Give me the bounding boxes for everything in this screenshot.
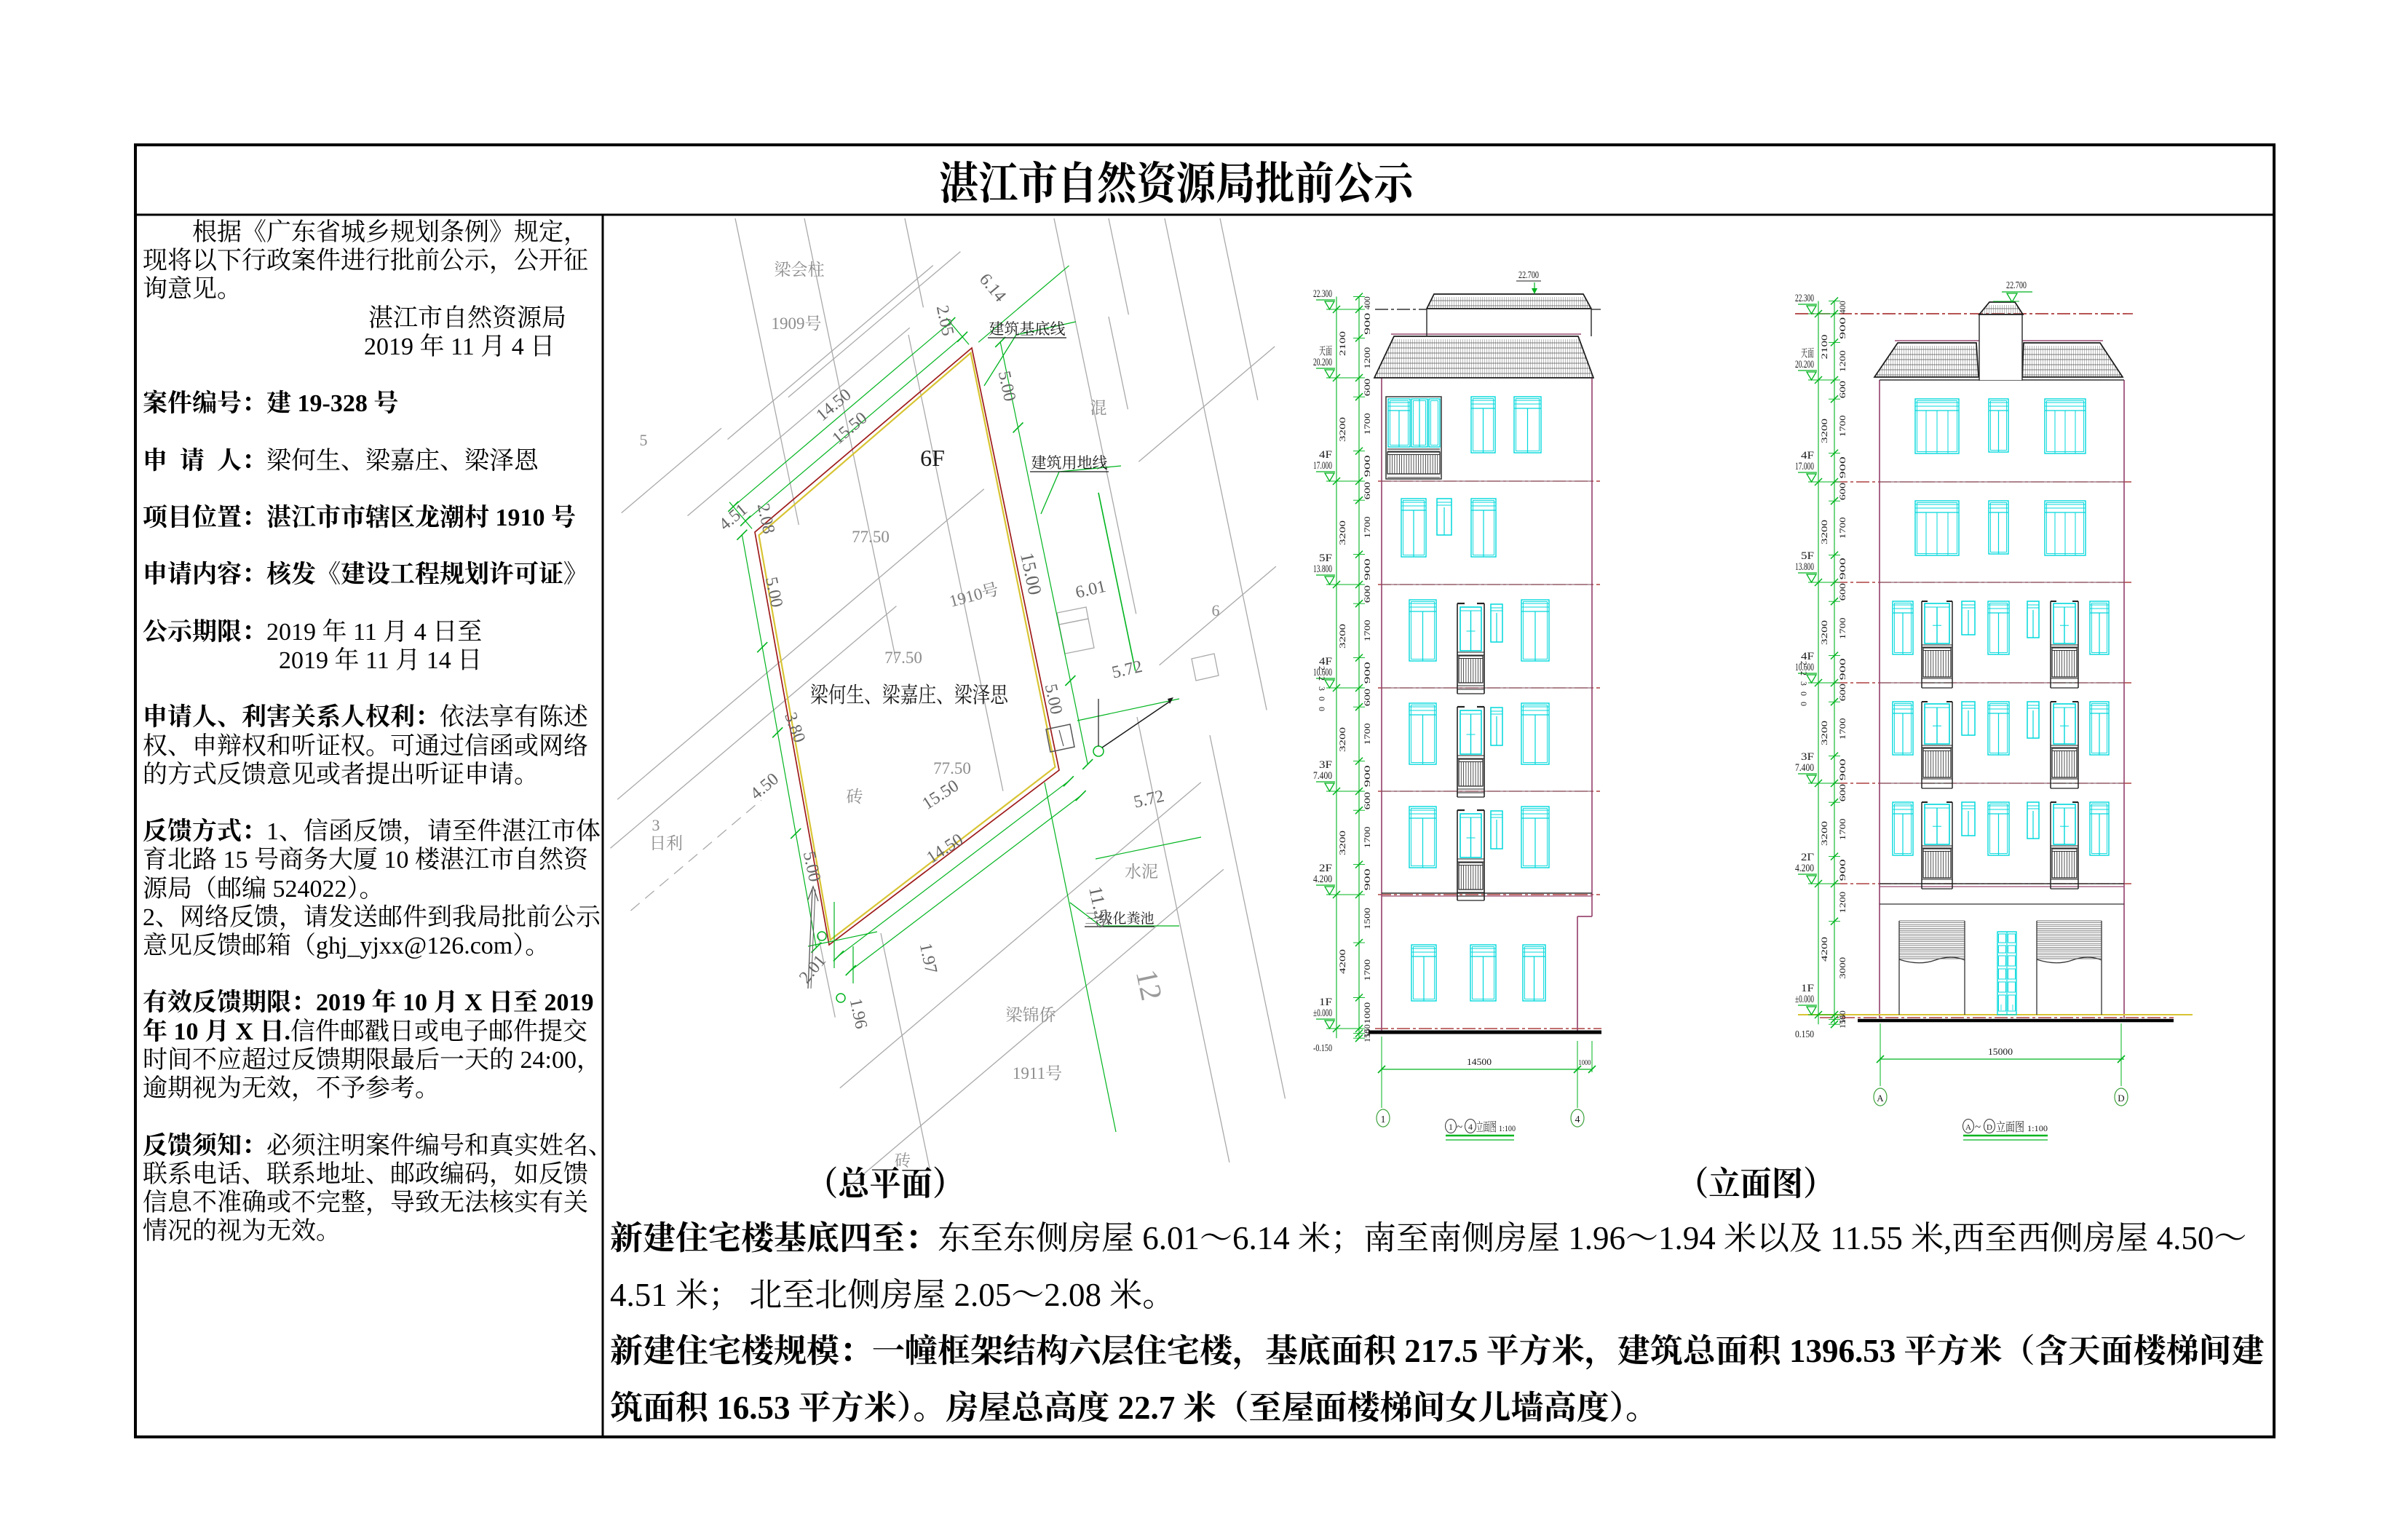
svg-text:梁锦侨: 梁锦侨	[1006, 1006, 1056, 1024]
svg-text:400: 400	[1362, 296, 1372, 309]
svg-text:梁何生、梁嘉庄、梁泽思: 梁何生、梁嘉庄、梁泽思	[810, 684, 1009, 708]
svg-text:3200: 3200	[1337, 727, 1347, 752]
svg-text:400: 400	[1837, 301, 1847, 314]
svg-text:20.200: 20.200	[1313, 357, 1332, 368]
svg-text:5F: 5F	[1801, 550, 1814, 562]
svg-text:900: 900	[1362, 765, 1372, 787]
svg-text:4F: 4F	[1801, 450, 1814, 462]
svg-text:D: D	[1987, 1123, 1992, 1132]
svg-text:150: 150	[1362, 1029, 1372, 1042]
svg-text:5.00: 5.00	[761, 575, 786, 609]
svg-text:3200: 3200	[1819, 821, 1829, 846]
svg-text:3.80: 3.80	[780, 710, 809, 745]
svg-text:1700: 1700	[1362, 413, 1372, 435]
svg-text:1000: 1000	[1579, 1059, 1591, 1067]
svg-text:4200: 4200	[1337, 949, 1347, 974]
svg-text:3200: 3200	[1337, 831, 1347, 855]
svg-text:3200: 3200	[1337, 520, 1347, 545]
svg-text:600: 600	[1362, 792, 1372, 809]
svg-text:±0.000: ±0.000	[1795, 994, 1814, 1005]
svg-text:D: D	[2118, 1093, 2124, 1104]
svg-text:0.150: 0.150	[1795, 1029, 1814, 1040]
svg-text:17.000: 17.000	[1313, 460, 1332, 472]
svg-text:4: 4	[1575, 1114, 1580, 1125]
svg-text:6.01: 6.01	[1074, 577, 1108, 603]
svg-text:1909号: 1909号	[772, 314, 822, 333]
svg-text:900: 900	[1837, 758, 1847, 780]
svg-text:4200: 4200	[1819, 937, 1829, 962]
svg-text:12: 12	[1129, 967, 1168, 1004]
svg-text:梁会柱: 梁会柱	[775, 261, 825, 279]
svg-text:1:100: 1:100	[1499, 1123, 1516, 1133]
svg-text:6: 6	[1212, 601, 1220, 619]
svg-text:22.300: 22.300	[1795, 293, 1814, 304]
svg-text:900: 900	[1362, 558, 1372, 580]
svg-text:2Γ: 2Γ	[1801, 852, 1814, 863]
svg-text:600: 600	[1837, 583, 1847, 601]
svg-text:4F: 4F	[1319, 449, 1332, 461]
svg-text:5.72: 5.72	[1110, 657, 1144, 683]
svg-text:900: 900	[1837, 658, 1847, 680]
svg-text:立面图: 立面图	[1996, 1120, 2024, 1134]
svg-text:900: 900	[1362, 313, 1372, 335]
svg-text:3200: 3200	[1819, 721, 1829, 745]
svg-text:4: 4	[1468, 1122, 1473, 1132]
svg-text:1F: 1F	[1801, 983, 1814, 994]
svg-text:1F: 1F	[1319, 997, 1332, 1008]
svg-text:天面: 天面	[1319, 345, 1332, 357]
svg-text:日利: 日利	[649, 834, 683, 852]
svg-text:22.700: 22.700	[1518, 270, 1539, 281]
svg-text:14.50: 14.50	[923, 831, 966, 868]
svg-text:15.00: 15.00	[1016, 551, 1046, 597]
svg-text:3200: 3200	[1819, 620, 1829, 645]
svg-text:7.400: 7.400	[1313, 770, 1332, 782]
svg-text:150: 150	[1837, 1015, 1847, 1029]
svg-text:77.50: 77.50	[884, 649, 922, 667]
svg-text:1911号: 1911号	[1013, 1064, 1062, 1082]
svg-text:600: 600	[1837, 381, 1847, 398]
svg-text:1.96: 1.96	[846, 997, 871, 1030]
svg-text:1700: 1700	[1362, 826, 1372, 848]
svg-text:2.05: 2.05	[932, 304, 957, 337]
svg-text:3200: 3200	[1819, 419, 1829, 443]
svg-text:1700: 1700	[1837, 617, 1847, 639]
svg-text:900: 900	[1837, 456, 1847, 478]
svg-text:A: A	[1965, 1123, 1971, 1132]
svg-text:2.01: 2.01	[796, 951, 830, 987]
svg-text:77.50: 77.50	[933, 759, 971, 777]
svg-text:22.300: 22.300	[1313, 288, 1332, 300]
svg-text:1:100: 1:100	[2027, 1123, 2048, 1133]
svg-text:1: 1	[1449, 1122, 1453, 1132]
svg-text:天面: 天面	[1801, 347, 1814, 360]
svg-text:600: 600	[1837, 684, 1847, 701]
svg-text:3: 3	[652, 816, 660, 834]
svg-text:600: 600	[1362, 482, 1372, 499]
svg-text:~: ~	[1457, 1122, 1462, 1133]
svg-text:1200: 1200	[1837, 350, 1847, 372]
svg-text:1: 1	[1381, 1114, 1386, 1125]
svg-text:1700: 1700	[1837, 818, 1847, 840]
svg-text:600: 600	[1362, 379, 1372, 396]
svg-text:5F: 5F	[1319, 552, 1332, 564]
svg-text:1700: 1700	[1362, 959, 1372, 981]
svg-text:6F: 6F	[920, 445, 945, 471]
svg-text:1700: 1700	[1837, 718, 1847, 740]
svg-text:15.50: 15.50	[919, 777, 962, 814]
svg-text:900: 900	[1837, 558, 1847, 579]
svg-text:7.400: 7.400	[1795, 762, 1814, 774]
svg-text:600: 600	[1362, 585, 1372, 603]
svg-text:1700: 1700	[1362, 723, 1372, 745]
svg-text:水泥: 水泥	[1125, 863, 1158, 881]
svg-text:1000: 1000	[1362, 1002, 1372, 1024]
svg-text:±0.000: ±0.000	[1313, 1007, 1332, 1019]
svg-text:4.50: 4.50	[747, 769, 783, 804]
svg-text:1200: 1200	[1837, 892, 1847, 914]
svg-text:13.800: 13.800	[1795, 561, 1814, 573]
svg-text:5.72: 5.72	[1132, 787, 1166, 812]
svg-text:2100: 2100	[1819, 335, 1829, 360]
svg-text:1200: 1200	[1362, 347, 1372, 369]
svg-text:13.800: 13.800	[1313, 563, 1332, 575]
svg-text:2100: 2100	[1337, 331, 1347, 356]
svg-text:1.97: 1.97	[916, 941, 940, 975]
svg-text:3200: 3200	[1819, 520, 1829, 544]
svg-text:4.200: 4.200	[1795, 863, 1814, 874]
svg-text:600: 600	[1362, 689, 1372, 706]
svg-text:4.200: 4.200	[1313, 874, 1332, 885]
svg-text:建筑用地线: 建筑用地线	[1031, 454, 1108, 472]
svg-text:17.000: 17.000	[1795, 461, 1814, 472]
svg-text:2F: 2F	[1319, 863, 1332, 874]
svg-text:1910号: 1910号	[947, 580, 1000, 611]
svg-text:立面图: 立面图	[1476, 1120, 1497, 1134]
svg-text:77.50: 77.50	[852, 528, 890, 546]
svg-text:~: ~	[1975, 1122, 1981, 1133]
svg-text:建筑基底线: 建筑基底线	[989, 320, 1066, 338]
svg-text:1500: 1500	[1362, 908, 1372, 930]
svg-text:22300: 22300	[1317, 666, 1327, 717]
svg-text:22300: 22300	[1799, 661, 1809, 712]
svg-text:600: 600	[1837, 483, 1847, 500]
svg-text:3200: 3200	[1337, 624, 1347, 649]
svg-text:22.700: 22.700	[2006, 280, 2027, 291]
svg-text:5.00: 5.00	[994, 369, 1019, 403]
svg-text:5.00: 5.00	[799, 849, 824, 883]
svg-text:3200: 3200	[1337, 417, 1347, 442]
svg-text:900: 900	[1837, 317, 1847, 339]
svg-text:砖: 砖	[847, 788, 863, 806]
svg-text:1700: 1700	[1837, 517, 1847, 539]
svg-text:900: 900	[1362, 662, 1372, 684]
svg-text:6.14: 6.14	[975, 270, 1010, 306]
svg-text:-0.150: -0.150	[1313, 1043, 1332, 1054]
svg-text:1700: 1700	[1362, 516, 1372, 538]
svg-text:14500: 14500	[1467, 1056, 1492, 1067]
svg-text:900: 900	[1362, 868, 1372, 890]
svg-text:3F: 3F	[1319, 759, 1332, 771]
svg-text:3F: 3F	[1801, 751, 1814, 763]
svg-text:900: 900	[1837, 859, 1847, 881]
svg-text:15000: 15000	[1988, 1046, 2013, 1057]
svg-text:1700: 1700	[1362, 619, 1372, 641]
svg-text:600: 600	[1837, 784, 1847, 801]
svg-text:900: 900	[1362, 455, 1372, 477]
svg-text:混: 混	[1090, 399, 1107, 417]
svg-text:1700: 1700	[1837, 415, 1847, 437]
svg-text:20.200: 20.200	[1795, 359, 1814, 371]
svg-text:3000: 3000	[1837, 957, 1847, 979]
svg-text:A: A	[1877, 1093, 1884, 1104]
svg-text:4.51: 4.51	[716, 500, 751, 534]
